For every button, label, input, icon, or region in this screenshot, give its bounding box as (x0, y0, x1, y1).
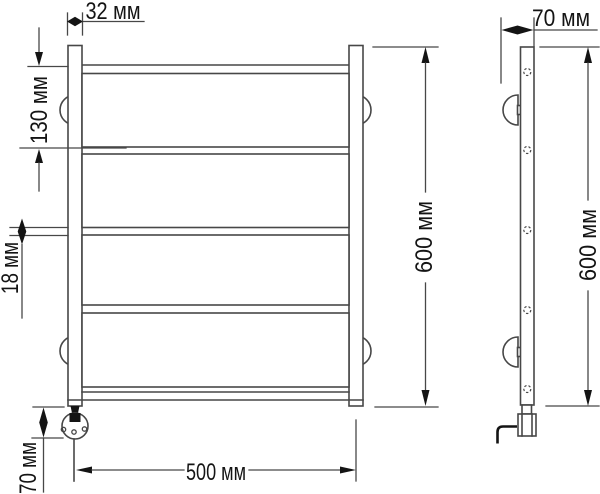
dim-label-overall-width: 500 мм (186, 459, 246, 486)
dim-label-overall-height-side: 600 мм (575, 209, 600, 281)
rung-1 (82, 74, 349, 148)
dimension-tube-width: 32 мм (67, 0, 144, 35)
left-collector-tube (68, 46, 82, 407)
dimension-rung-gap: 18 мм (0, 219, 68, 319)
dimension-arrow (67, 17, 83, 26)
dimension-arrow (35, 149, 43, 163)
dimension-arrow (422, 47, 430, 63)
dimension-depth: 70 мм (502, 5, 598, 46)
element-neck (522, 405, 532, 414)
dimension-arrow (502, 26, 534, 35)
dimension-arrow (584, 47, 592, 63)
dim-label-overall-height-front: 600 мм (411, 201, 438, 273)
plug-contact-block (70, 413, 81, 422)
front-view: 32 мм 130 мм 18 мм 70 мм (0, 0, 438, 494)
dim-label-top-section: 130 мм (26, 76, 53, 144)
element-body (518, 414, 536, 436)
dimension-arrow (76, 467, 92, 474)
dimension-arrow (340, 467, 356, 474)
plug-neck (71, 406, 80, 413)
dim-label-tube-width: 32 мм (86, 0, 141, 25)
rung-3 (82, 235, 349, 305)
rung-4 (82, 313, 349, 387)
dimension-arrow (35, 52, 43, 66)
dimension-arrow (39, 408, 48, 438)
drawing-canvas: 32 мм 130 мм 18 мм 70 мм (0, 0, 600, 494)
right-collector-tube (349, 46, 363, 407)
dim-label-heater: 70 мм (15, 442, 42, 494)
side-collector-tube (521, 47, 535, 405)
side-view: 70 мм 600 мм (498, 5, 600, 444)
dimension-overall-height-front: 600 мм (373, 47, 438, 407)
dimension-heater: 70 мм (15, 407, 64, 494)
dimension-overall-width: 500 мм (76, 420, 356, 486)
side-bracket-top (503, 95, 518, 125)
dimension-arrow (422, 390, 430, 406)
dimension-arrow (18, 219, 27, 245)
side-bracket-bottom (503, 337, 518, 367)
dim-label-depth: 70 мм (532, 5, 590, 32)
dimension-arrow (584, 390, 592, 406)
dim-label-rung-gap: 18 мм (0, 242, 24, 294)
rung-2 (82, 154, 349, 228)
side-heating-element (498, 405, 537, 444)
power-cable-hook (498, 427, 518, 444)
towel-rail-drawing: 32 мм 130 мм 18 мм 70 мм (0, 0, 600, 494)
dimension-overall-height-side: 600 мм (540, 47, 600, 406)
